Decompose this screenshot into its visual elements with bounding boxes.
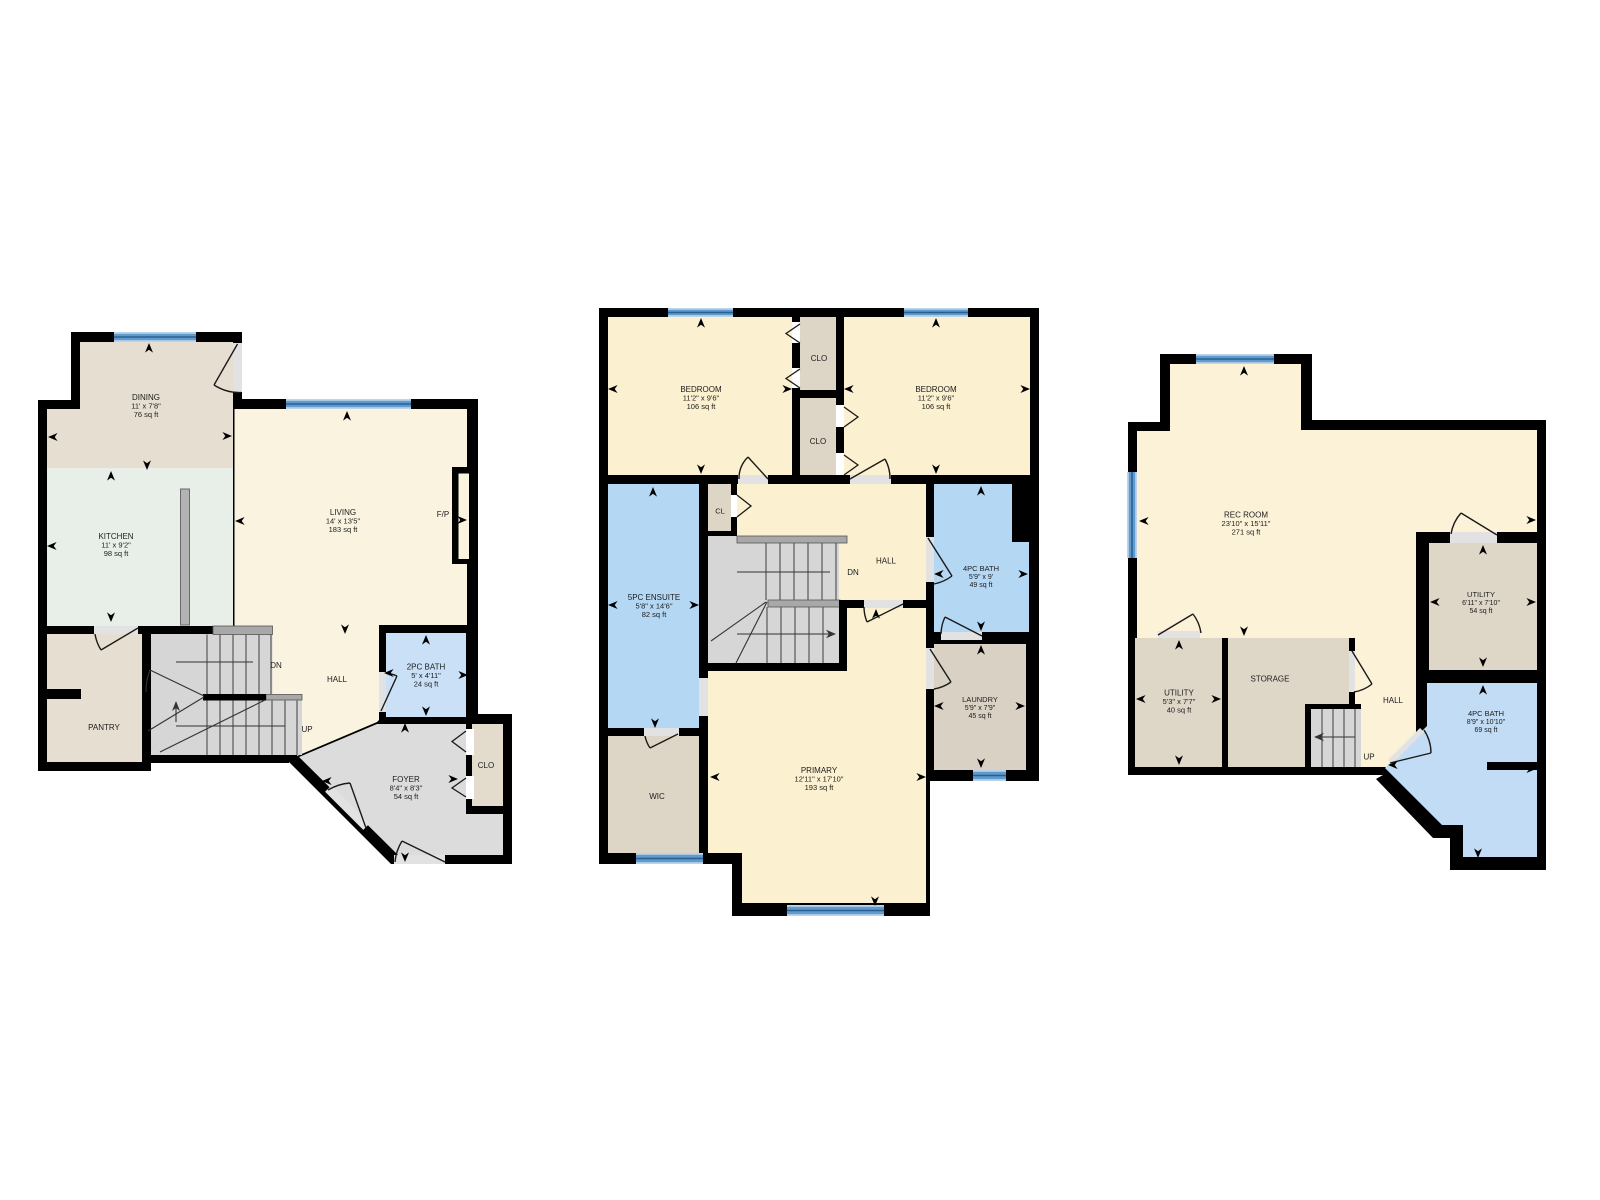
svg-text:PANTRY: PANTRY [88, 723, 120, 732]
svg-text:98 sq ft: 98 sq ft [104, 549, 130, 558]
svg-text:DN: DN [270, 661, 282, 670]
svg-text:CLO: CLO [478, 761, 494, 770]
svg-text:82 sq ft: 82 sq ft [642, 610, 668, 619]
svg-text:HALL: HALL [876, 557, 897, 566]
svg-text:24 sq ft: 24 sq ft [414, 680, 440, 689]
svg-text:40 sq ft: 40 sq ft [1167, 706, 1193, 715]
svg-text:76 sq ft: 76 sq ft [134, 410, 160, 419]
svg-text:5'9" x 7'9": 5'9" x 7'9" [965, 705, 996, 712]
svg-text:4PC BATH: 4PC BATH [1468, 709, 1504, 718]
svg-text:CLO: CLO [811, 354, 827, 363]
svg-text:DN: DN [847, 568, 859, 577]
svg-text:69 sq ft: 69 sq ft [1475, 727, 1498, 734]
svg-text:CLO: CLO [810, 437, 826, 446]
svg-text:8'9" x 10'10": 8'9" x 10'10" [1467, 719, 1506, 726]
svg-text:54 sq ft: 54 sq ft [394, 792, 420, 801]
svg-text:F/P: F/P [437, 510, 449, 519]
svg-text:4PC BATH: 4PC BATH [963, 564, 999, 573]
svg-text:UP: UP [301, 725, 312, 734]
svg-text:193 sq ft: 193 sq ft [805, 783, 835, 792]
svg-text:45 sq ft: 45 sq ft [969, 713, 992, 720]
svg-text:CL: CL [715, 507, 725, 516]
svg-text:5'9" x 9': 5'9" x 9' [969, 574, 993, 581]
svg-text:49 sq ft: 49 sq ft [970, 582, 993, 589]
svg-text:106 sq ft: 106 sq ft [687, 402, 717, 411]
svg-text:HALL: HALL [327, 675, 348, 684]
svg-text:STORAGE: STORAGE [1251, 675, 1290, 684]
svg-text:183 sq ft: 183 sq ft [329, 525, 359, 534]
svg-text:WIC: WIC [649, 792, 665, 801]
svg-text:LAUNDRY: LAUNDRY [962, 695, 998, 704]
svg-text:HALL: HALL [1383, 696, 1404, 705]
svg-text:106 sq ft: 106 sq ft [922, 402, 952, 411]
svg-text:54 sq ft: 54 sq ft [1470, 608, 1493, 615]
svg-text:271 sq ft: 271 sq ft [1232, 528, 1262, 537]
svg-text:6'11" x 7'10": 6'11" x 7'10" [1462, 600, 1500, 607]
svg-text:UTILITY: UTILITY [1467, 590, 1495, 599]
svg-text:UP: UP [1363, 753, 1374, 762]
